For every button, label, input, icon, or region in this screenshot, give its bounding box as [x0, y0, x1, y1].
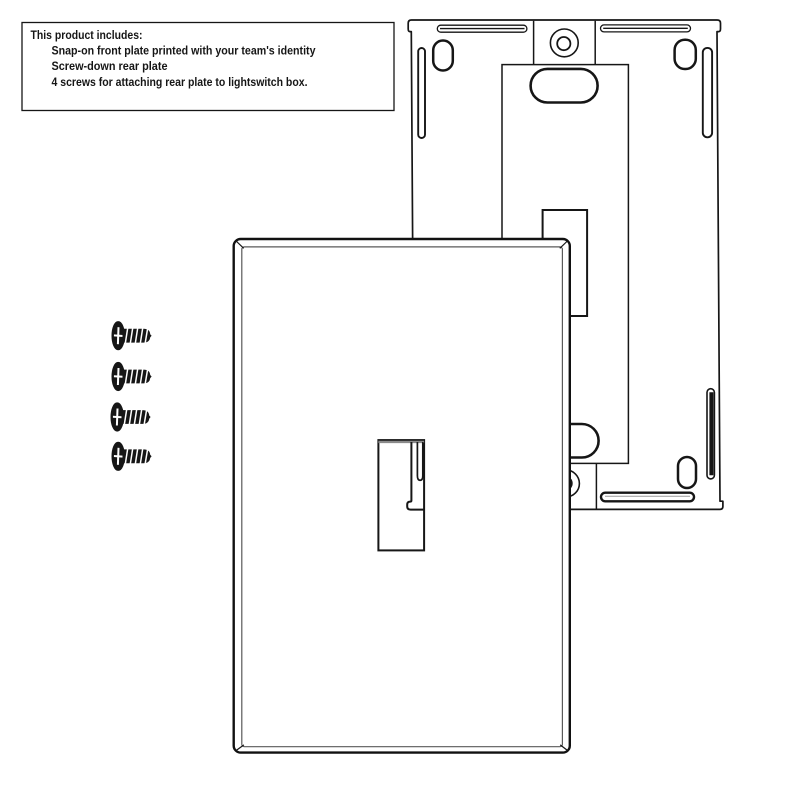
svg-text:This product includes:: This product includes:: [31, 28, 143, 42]
svg-text:Screw-down rear plate: Screw-down rear plate: [52, 59, 168, 73]
svg-text:Snap-on front plate printed wi: Snap-on front plate printed with your te…: [52, 44, 316, 58]
svg-text:4 screws for attaching rear pl: 4 screws for attaching rear plate to lig…: [52, 75, 308, 89]
